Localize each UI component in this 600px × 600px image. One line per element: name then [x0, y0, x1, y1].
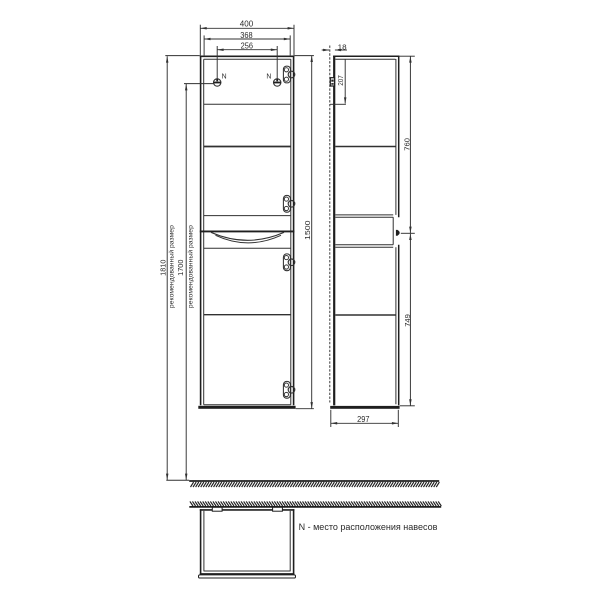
svg-text:N: N [222, 74, 227, 81]
svg-text:400: 400 [240, 20, 254, 29]
svg-text:207: 207 [336, 75, 345, 86]
svg-text:297: 297 [357, 415, 370, 424]
svg-text:368: 368 [240, 31, 253, 40]
svg-text:760: 760 [402, 138, 411, 151]
svg-text:N: N [266, 74, 271, 81]
svg-text:1500: 1500 [303, 220, 312, 240]
svg-text:256: 256 [241, 41, 254, 50]
svg-text:N - место расположения навесов: N - место расположения навесов [299, 522, 438, 532]
svg-text:рекомендованный размер: рекомендованный размер [168, 225, 176, 308]
svg-text:18: 18 [338, 42, 347, 51]
svg-text:1700: 1700 [176, 260, 185, 276]
svg-text:рекомендованный размер: рекомендованный размер [186, 225, 194, 308]
svg-text:1810: 1810 [159, 260, 168, 276]
svg-text:749: 749 [403, 314, 412, 327]
